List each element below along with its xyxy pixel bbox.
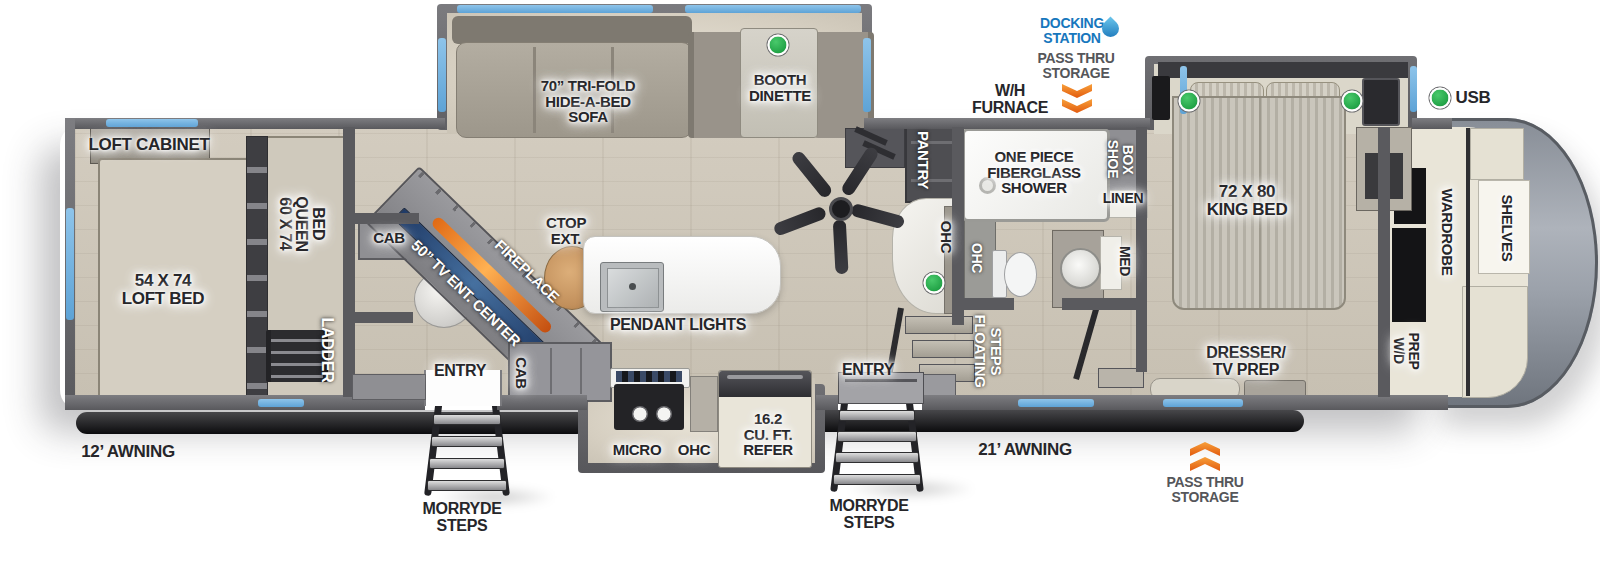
bath-bottom-wall-a [952, 298, 1014, 310]
range-grate [616, 371, 682, 382]
usb-label: USB [1456, 89, 1491, 107]
morryde-steps-right-label: MORRYDE STEPS [829, 498, 908, 531]
window-rear-top [106, 119, 198, 127]
ctop-ext-label: CTOP EXT. [546, 215, 586, 246]
light-bed-left [1179, 91, 1200, 112]
rear-divider-wall [343, 127, 355, 397]
shoe-box-label: SHOE BOX [1105, 140, 1134, 178]
step-rung [429, 458, 505, 469]
docking-station-label: DOCKING STATION [1040, 16, 1104, 45]
top-wall-front [1412, 118, 1452, 129]
nightstand-window-right [1362, 78, 1400, 126]
awning-12-label: 12’ AWNING [81, 443, 175, 461]
step-rung [835, 452, 919, 463]
step-rung [833, 474, 921, 485]
pendant-lights-label: PENDANT LIGHTS [610, 317, 746, 334]
bedroom-closet-wall [1378, 127, 1390, 397]
pantry-label: PANTRY [915, 131, 931, 189]
closet-divider-line [1466, 128, 1470, 396]
fan-blade [840, 145, 880, 197]
window-sofa-slide-top-2 [685, 5, 861, 13]
loft-cabinet-label: LOFT CABINET [88, 136, 209, 154]
chevron-up [1190, 442, 1220, 456]
burner-knob [632, 406, 648, 422]
ohc-kitchen-label: OHC [678, 442, 710, 458]
refrigerator-handle [727, 375, 803, 379]
light-booth-dinette [768, 35, 789, 56]
window-sofa-slide-right [863, 38, 871, 112]
linen-label: LINEN [1103, 191, 1144, 206]
king-headboard [1158, 62, 1408, 78]
med-label: MED [1118, 246, 1133, 276]
morryde-steps-right-graphic [830, 396, 924, 492]
nightstand-window-left [1152, 76, 1170, 120]
pass-thru-chevron-up-icon [1190, 442, 1220, 474]
window-bedroom-bottom [1163, 399, 1243, 407]
window-sofa-slide-top-1 [457, 5, 653, 13]
front-closet-upper-cabinet [1470, 128, 1524, 180]
wd-prep-label: W/D PREP [1391, 333, 1420, 370]
vanity-sink [1060, 248, 1101, 289]
window-king-slide-right [1410, 66, 1417, 112]
wardrobe-opening [1392, 228, 1426, 322]
window-rear-bottom [258, 399, 304, 407]
queen-headboard-slats [246, 136, 268, 396]
ohc-bath-label: OHC [970, 243, 985, 273]
dinette-bench-left [688, 32, 746, 138]
wardrobe-label: WARDROBE [1439, 189, 1455, 276]
morryde-steps-left-graphic [424, 398, 510, 496]
ohc-desk-label: OHC [938, 221, 954, 253]
toilet [992, 248, 1038, 300]
shower-label: ONE PIECE FIBERGLASS SHOWER [987, 149, 1081, 196]
awning-bar-rear [76, 412, 588, 434]
pass-thru-storage-bottom-label: PASS THRU STORAGE [1166, 475, 1243, 504]
bath-bedroom-wall [1136, 127, 1147, 372]
entry-left-label: ENTRY [434, 363, 486, 380]
fan-hub [829, 197, 853, 221]
pass-thru-chevron-down-icon [1062, 84, 1092, 116]
entry-right-label: ENTRY [842, 362, 894, 379]
step-rung [837, 431, 917, 442]
ceiling-fan [782, 150, 894, 262]
chevron-down [1062, 84, 1092, 98]
sofa-back [452, 16, 692, 44]
step-rung [431, 436, 503, 447]
rv-floorplan-canvas: LOFT CABINET54 X 74 LOFT BED60 X 74 QUEE… [0, 0, 1600, 566]
cabinet-door-seam [550, 348, 552, 394]
bottom-wall-a [497, 395, 587, 410]
island-sink [600, 262, 664, 312]
pass-thru-storage-top-label: PASS THRU STORAGE [1037, 51, 1114, 80]
entry-left-step-block [352, 374, 426, 400]
chevron-down [1062, 99, 1092, 113]
step-tread [912, 340, 974, 358]
floating-steps-label: FLOATING STEPS [972, 314, 1003, 387]
rear-stub-wall-lower [355, 312, 413, 323]
dresser-tv-prep-label: DRESSER/ TV PREP [1206, 345, 1285, 378]
kitchen-counter-mid [690, 376, 718, 432]
window-sofa-slide-left [438, 38, 446, 112]
loft-bed-label: 54 X 74 LOFT BED [122, 272, 205, 307]
burner-knob [656, 406, 672, 422]
bath-bottom-wall-b [1062, 298, 1147, 310]
cabinet-door-seam [580, 348, 582, 394]
shelves-label: SHELVES [1499, 195, 1515, 262]
usb-legend-dot [1430, 88, 1451, 109]
step-rung [427, 480, 507, 491]
queen-bed-label: 60 X 74 QUEEN BED [276, 196, 326, 251]
morryde-steps-left-label: MORRYDE STEPS [422, 501, 501, 534]
chevron-up [1190, 457, 1220, 471]
top-wall-mid [864, 118, 1150, 129]
micro-label: MICRO [613, 442, 662, 458]
platform-edge-line [845, 379, 917, 382]
sofa-cushion-seam [533, 47, 536, 133]
toilet-bowl [1004, 252, 1037, 297]
fan-blade [833, 220, 849, 275]
window-rear-left [66, 208, 74, 320]
refer-label: 16.2 CU. FT. REFER [743, 411, 792, 458]
booth-dinette-label: BOOTH DINETTE [749, 72, 811, 103]
sofa-label: 70” TRI-FOLD HIDE-A-BED SOFA [541, 78, 636, 125]
step-rung [839, 410, 915, 421]
light-bed-right [1342, 91, 1363, 112]
cab-upper-label: CAB [373, 230, 405, 246]
rear-stub-wall-upper [355, 213, 419, 224]
front-closet-lower-cabinet [1462, 286, 1528, 398]
light-desk [924, 273, 945, 294]
step-rung [433, 414, 501, 425]
king-bed-label: 72 X 80 KING BED [1207, 183, 1288, 218]
wh-furnace-label: W/H FURNACE [972, 83, 1048, 116]
range-body [614, 384, 684, 430]
awning-21-label: 21’ AWNING [978, 441, 1072, 459]
sink-faucet-dot [629, 283, 636, 290]
cab-lower-label: CAB [513, 357, 529, 389]
bottom-wall-b [816, 395, 838, 410]
ladder-label: LADDER [319, 318, 336, 383]
fan-blade [790, 149, 834, 199]
window-hall-bottom [1018, 399, 1094, 407]
